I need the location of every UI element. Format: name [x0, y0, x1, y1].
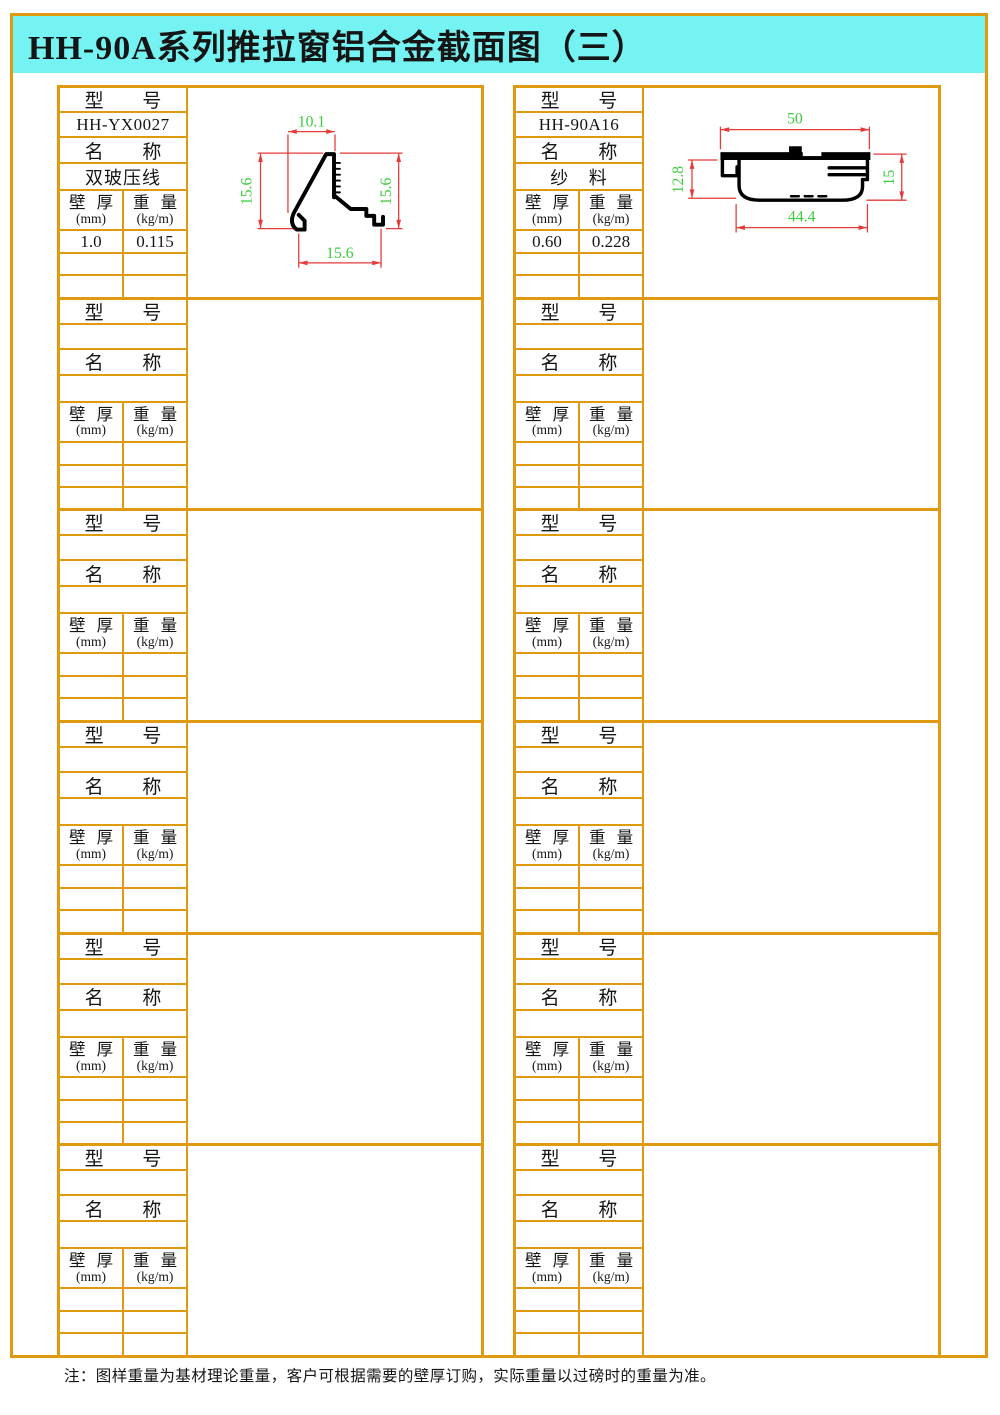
drawing-cell-empty: [644, 300, 938, 509]
name-label: 名 称: [60, 985, 186, 1011]
name-value: [60, 1011, 186, 1038]
dim-label-bottom: 44.4: [788, 209, 816, 226]
page-title: HH-90A系列推拉窗铝合金截面图（三）: [28, 20, 647, 69]
model-label: 型 号: [60, 511, 186, 536]
name-value: 纱 料: [516, 164, 642, 191]
name-label: 名 称: [516, 985, 642, 1011]
profile-info: 型 号 名 称 壁 厚(mm) 重 量(kg/m): [60, 723, 188, 932]
name-label: 名 称: [516, 350, 642, 376]
profile-info: 型 号 名 称 壁 厚(mm) 重 量(kg/m): [60, 1146, 188, 1355]
dim-label-bottom: 15.6: [326, 245, 354, 262]
spec-header-row: 壁 厚(mm) 重 量(kg/m): [516, 826, 642, 866]
profile-block-hh-90a16: 型 号 HH-90A16 名 称 纱 料 壁 厚 (mm) 重 量 (kg/m)…: [516, 88, 938, 297]
weight-header: 重 量(kg/m): [124, 826, 186, 864]
name-value: [60, 376, 186, 403]
profiles-table-right: 型 号 HH-90A16 名 称 纱 料 壁 厚 (mm) 重 量 (kg/m)…: [513, 85, 941, 1358]
drawing-cell-empty: [644, 511, 938, 720]
profile-info: 型 号 名 称 壁 厚(mm) 重 量(kg/m): [60, 511, 188, 720]
wall-thickness-header: 壁 厚(mm): [60, 826, 124, 864]
profile-block-empty: 型 号 名 称 壁 厚(mm) 重 量(kg/m): [60, 720, 481, 932]
spec-header-row: 壁 厚(mm) 重 量(kg/m): [516, 1038, 642, 1078]
spec-header-row: 壁 厚(mm) 重 量(kg/m): [516, 1249, 642, 1289]
wall-thickness-header: 壁 厚 (mm): [60, 191, 124, 229]
name-value: [516, 1011, 642, 1038]
model-value: [60, 325, 186, 350]
drawing-cell-empty: [188, 300, 481, 509]
name-label: 名 称: [60, 773, 186, 799]
wall-thickness-header: 壁 厚(mm): [516, 403, 580, 441]
wall-thickness-value: 0.60: [516, 231, 580, 252]
profile-info: 型 号 名 称 壁 厚(mm) 重 量(kg/m): [60, 935, 188, 1144]
profile-block-empty: 型 号 名 称 壁 厚(mm) 重 量(kg/m): [60, 932, 481, 1144]
model-value: HH-YX0027: [60, 113, 186, 138]
weight-header: 重 量(kg/m): [580, 826, 642, 864]
weight-header: 重 量(kg/m): [580, 1249, 642, 1287]
profile-block-empty: 型 号 名 称 壁 厚(mm) 重 量(kg/m): [516, 932, 938, 1144]
profile-block-empty: 型 号 名 称 壁 厚(mm) 重 量(kg/m): [516, 508, 938, 720]
name-value: [60, 587, 186, 614]
wall-thickness-header: 壁 厚 (mm): [516, 191, 580, 229]
dim-label-right: 15: [881, 170, 898, 186]
title-bar: HH-90A系列推拉窗铝合金截面图（三）: [13, 16, 985, 73]
model-label: 型 号: [60, 935, 186, 960]
profile-info: 型 号 名 称 壁 厚(mm) 重 量(kg/m): [516, 511, 644, 720]
name-value: [60, 799, 186, 826]
model-value: [60, 1171, 186, 1196]
spec-header-row: 壁 厚(mm) 重 量(kg/m): [60, 1249, 186, 1289]
weight-header: 重 量(kg/m): [580, 403, 642, 441]
wall-thickness-value: 1.0: [60, 231, 124, 252]
wall-thickness-header: 壁 厚(mm): [60, 1249, 124, 1287]
model-value: [60, 960, 186, 985]
name-label: 名 称: [516, 561, 642, 587]
weight-header: 重 量(kg/m): [124, 1249, 186, 1287]
name-value: [516, 587, 642, 614]
model-value: [516, 536, 642, 561]
profile-block-empty: 型 号 名 称 壁 厚(mm) 重 量(kg/m): [516, 297, 938, 509]
name-label: 名 称: [60, 350, 186, 376]
model-label: 型 号: [60, 300, 186, 325]
profile-block-empty: 型 号 名 称 壁 厚(mm) 重 量(kg/m): [60, 297, 481, 509]
weight-header: 重 量(kg/m): [580, 614, 642, 652]
wall-thickness-header: 壁 厚(mm): [516, 1249, 580, 1287]
profile-info: 型 号 名 称 壁 厚(mm) 重 量(kg/m): [60, 300, 188, 509]
spec-header-row: 壁 厚(mm) 重 量(kg/m): [60, 826, 186, 866]
name-label: 名 称: [60, 1196, 186, 1222]
weight-header: 重 量(kg/m): [124, 1038, 186, 1076]
name-label: 名 称: [60, 561, 186, 587]
name-label: 名 称: [516, 138, 642, 164]
drawing-cell-empty: [188, 935, 481, 1144]
spec-value-row: [60, 254, 186, 276]
wall-thickness-header: 壁 厚(mm): [516, 826, 580, 864]
wall-thickness-header: 壁 厚(mm): [516, 1038, 580, 1076]
profile-info: 型 号 名 称 壁 厚(mm) 重 量(kg/m): [516, 1146, 644, 1355]
spec-header-row: 壁 厚 (mm) 重 量 (kg/m): [516, 191, 642, 231]
drawing-cell: 50 12.8 15 44.4: [644, 88, 938, 297]
dim-label-left: 12.8: [670, 166, 687, 194]
spec-header-row: 壁 厚(mm) 重 量(kg/m): [60, 403, 186, 443]
dim-label-top: 10.1: [298, 114, 325, 131]
spec-value-row: 0.60 0.228: [516, 231, 642, 254]
model-value: [516, 748, 642, 773]
spec-sheet-page: HH-90A系列推拉窗铝合金截面图（三） 型 号 HH-YX0027 名 称 双…: [0, 0, 1000, 1415]
profile-block-empty: 型 号 名 称 壁 厚(mm) 重 量(kg/m): [516, 1143, 938, 1355]
profiles-table-left: 型 号 HH-YX0027 名 称 双玻压线 壁 厚 (mm) 重 量 (kg/…: [57, 85, 484, 1358]
model-label: 型 号: [516, 300, 642, 325]
weight-header: 重 量(kg/m): [124, 614, 186, 652]
model-value: [60, 748, 186, 773]
model-label: 型 号: [60, 88, 186, 113]
profile-block-hh-yx0027: 型 号 HH-YX0027 名 称 双玻压线 壁 厚 (mm) 重 量 (kg/…: [60, 88, 481, 297]
weight-header: 重 量 (kg/m): [580, 191, 642, 229]
drawing-cell-empty: [644, 1146, 938, 1355]
model-value: HH-90A16: [516, 113, 642, 138]
spec-header-row: 壁 厚(mm) 重 量(kg/m): [60, 614, 186, 654]
dim-label-left: 15.6: [239, 177, 256, 205]
model-label: 型 号: [60, 723, 186, 748]
spec-header-row: 壁 厚(mm) 重 量(kg/m): [60, 1038, 186, 1078]
weight-value: 0.115: [124, 231, 186, 252]
spec-value-row: [60, 276, 186, 297]
spec-header-row: 壁 厚(mm) 重 量(kg/m): [516, 403, 642, 443]
model-value: [516, 325, 642, 350]
dim-label-right: 15.6: [378, 177, 395, 205]
name-value: [516, 799, 642, 826]
model-label: 型 号: [516, 1146, 642, 1171]
profile-drawing-hh-yx0027: 10.1 15.6 15.6 15.6: [188, 88, 481, 297]
dim-label-top: 50: [787, 111, 803, 128]
name-label: 名 称: [516, 773, 642, 799]
profile-info: 型 号 名 称 壁 厚(mm) 重 量(kg/m): [516, 935, 644, 1144]
wall-thickness-header: 壁 厚(mm): [516, 614, 580, 652]
model-label: 型 号: [516, 935, 642, 960]
name-value: [60, 1222, 186, 1249]
name-label: 名 称: [60, 138, 186, 164]
model-value: [60, 536, 186, 561]
name-label: 名 称: [516, 1196, 642, 1222]
spec-value-row: 1.0 0.115: [60, 231, 186, 254]
drawing-cell-empty: [188, 723, 481, 932]
model-value: [516, 960, 642, 985]
profile-info: 型 号 名 称 壁 厚(mm) 重 量(kg/m): [516, 300, 644, 509]
wall-thickness-header: 壁 厚(mm): [60, 403, 124, 441]
weight-header: 重 量(kg/m): [580, 1038, 642, 1076]
wall-thickness-header: 壁 厚(mm): [60, 614, 124, 652]
name-value: [516, 376, 642, 403]
profile-info: 型 号 HH-YX0027 名 称 双玻压线 壁 厚 (mm) 重 量 (kg/…: [60, 88, 188, 297]
profile-block-empty: 型 号 名 称 壁 厚(mm) 重 量(kg/m): [60, 508, 481, 720]
drawing-cell-empty: [188, 1146, 481, 1355]
profile-block-empty: 型 号 名 称 壁 厚(mm) 重 量(kg/m): [60, 1143, 481, 1355]
profile-info: 型 号 HH-90A16 名 称 纱 料 壁 厚 (mm) 重 量 (kg/m)…: [516, 88, 644, 297]
weight-header: 重 量(kg/m): [124, 403, 186, 441]
footnote: 注：图样重量为基材理论重量，客户可根据需要的壁厚订购，实际重量以过磅时的重量为准…: [64, 1364, 716, 1386]
model-value: [516, 1171, 642, 1196]
model-label: 型 号: [60, 1146, 186, 1171]
drawing-cell-empty: [188, 511, 481, 720]
profile-info: 型 号 名 称 壁 厚(mm) 重 量(kg/m): [516, 723, 644, 932]
spec-header-row: 壁 厚 (mm) 重 量 (kg/m): [60, 191, 186, 231]
drawing-cell-empty: [644, 723, 938, 932]
model-label: 型 号: [516, 511, 642, 536]
drawing-cell-empty: [644, 935, 938, 1144]
model-label: 型 号: [516, 723, 642, 748]
name-value: 双玻压线: [60, 164, 186, 191]
wall-thickness-header: 壁 厚(mm): [60, 1038, 124, 1076]
weight-header: 重 量 (kg/m): [124, 191, 186, 229]
profile-block-empty: 型 号 名 称 壁 厚(mm) 重 量(kg/m): [516, 720, 938, 932]
drawing-cell: 10.1 15.6 15.6 15.6: [188, 88, 481, 297]
name-value: [516, 1222, 642, 1249]
model-label: 型 号: [516, 88, 642, 113]
spec-header-row: 壁 厚(mm) 重 量(kg/m): [516, 614, 642, 654]
weight-value: 0.228: [580, 231, 642, 252]
profile-drawing-hh-90a16: 50 12.8 15 44.4: [644, 88, 938, 297]
